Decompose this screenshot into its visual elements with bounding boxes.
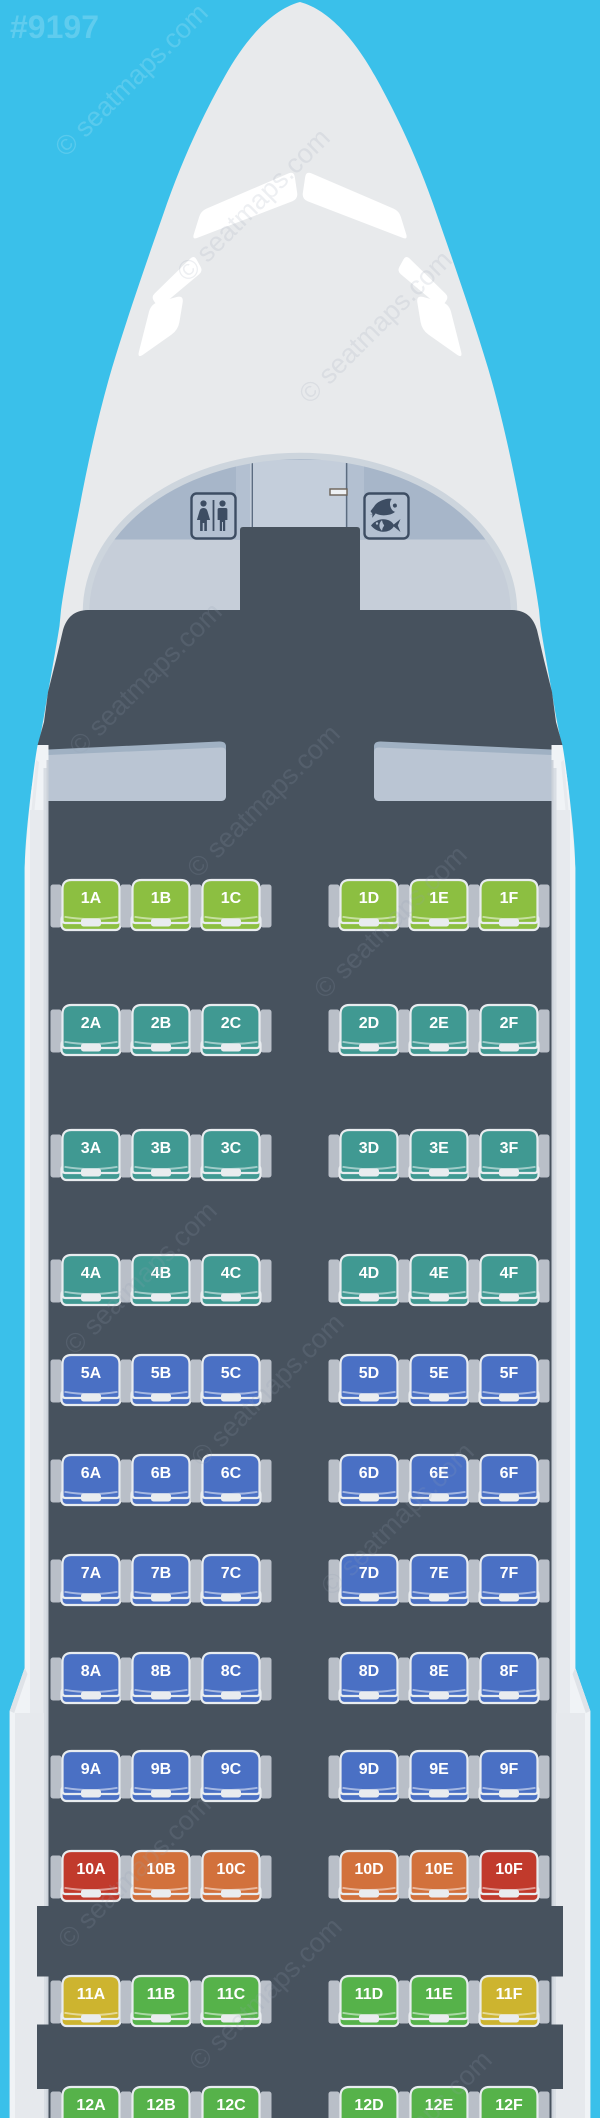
- svg-text:12C: 12C: [216, 2097, 246, 2114]
- svg-text:12D: 12D: [354, 2097, 383, 2114]
- svg-text:10A: 10A: [76, 1861, 106, 1878]
- svg-text:6B: 6B: [151, 1465, 171, 1482]
- svg-text:3E: 3E: [429, 1140, 449, 1157]
- svg-text:1A: 1A: [81, 890, 102, 907]
- svg-text:10F: 10F: [495, 1861, 523, 1878]
- svg-text:9A: 9A: [81, 1761, 102, 1778]
- svg-text:8A: 8A: [81, 1663, 102, 1680]
- svg-text:4D: 4D: [359, 1265, 379, 1282]
- svg-text:9B: 9B: [151, 1761, 171, 1778]
- svg-text:3C: 3C: [221, 1140, 242, 1157]
- svg-text:9D: 9D: [359, 1761, 379, 1778]
- svg-text:3F: 3F: [500, 1140, 519, 1157]
- svg-text:6C: 6C: [221, 1465, 242, 1482]
- svg-text:5A: 5A: [81, 1365, 102, 1382]
- svg-text:1C: 1C: [221, 890, 242, 907]
- svg-text:8B: 8B: [151, 1663, 171, 1680]
- svg-text:4C: 4C: [221, 1265, 242, 1282]
- svg-text:2E: 2E: [429, 1015, 449, 1032]
- svg-text:12F: 12F: [495, 2097, 523, 2114]
- svg-text:12B: 12B: [146, 2097, 175, 2114]
- svg-text:11E: 11E: [425, 1986, 453, 2003]
- svg-text:8D: 8D: [359, 1663, 379, 1680]
- svg-text:2D: 2D: [359, 1015, 379, 1032]
- svg-text:7C: 7C: [221, 1565, 242, 1582]
- svg-text:7B: 7B: [151, 1565, 171, 1582]
- svg-text:6F: 6F: [500, 1465, 519, 1482]
- svg-text:8E: 8E: [429, 1663, 449, 1680]
- svg-text:7E: 7E: [429, 1565, 449, 1582]
- svg-text:5B: 5B: [151, 1365, 171, 1382]
- svg-text:8C: 8C: [221, 1663, 242, 1680]
- svg-text:6A: 6A: [81, 1465, 102, 1482]
- svg-text:7A: 7A: [81, 1565, 102, 1582]
- svg-text:9C: 9C: [221, 1761, 242, 1778]
- svg-text:3A: 3A: [81, 1140, 102, 1157]
- svg-text:#9197: #9197: [10, 9, 99, 45]
- svg-text:10D: 10D: [354, 1861, 383, 1878]
- svg-text:2F: 2F: [500, 1015, 519, 1032]
- svg-text:5C: 5C: [221, 1365, 242, 1382]
- svg-text:10C: 10C: [216, 1861, 246, 1878]
- svg-text:5D: 5D: [359, 1365, 379, 1382]
- svg-text:2A: 2A: [81, 1015, 102, 1032]
- svg-text:5F: 5F: [500, 1365, 519, 1382]
- svg-text:11F: 11F: [496, 1986, 523, 2003]
- svg-text:4F: 4F: [500, 1265, 519, 1282]
- svg-text:11A: 11A: [77, 1986, 106, 2003]
- svg-text:1F: 1F: [500, 890, 519, 907]
- svg-text:1B: 1B: [151, 890, 171, 907]
- svg-text:3B: 3B: [151, 1140, 171, 1157]
- svg-text:11B: 11B: [147, 1986, 175, 2003]
- svg-text:12A: 12A: [76, 2097, 106, 2114]
- svg-text:11D: 11D: [355, 1986, 383, 2003]
- svg-text:2C: 2C: [221, 1015, 242, 1032]
- svg-text:4A: 4A: [81, 1265, 102, 1282]
- svg-text:8F: 8F: [500, 1663, 519, 1680]
- svg-text:5E: 5E: [429, 1365, 449, 1382]
- svg-text:9E: 9E: [429, 1761, 449, 1778]
- svg-text:10E: 10E: [425, 1861, 454, 1878]
- svg-text:7F: 7F: [500, 1565, 519, 1582]
- svg-text:4E: 4E: [429, 1265, 449, 1282]
- svg-text:9F: 9F: [500, 1761, 519, 1778]
- svg-text:1D: 1D: [359, 890, 379, 907]
- svg-text:3D: 3D: [359, 1140, 379, 1157]
- svg-text:2B: 2B: [151, 1015, 171, 1032]
- svg-text:6D: 6D: [359, 1465, 379, 1482]
